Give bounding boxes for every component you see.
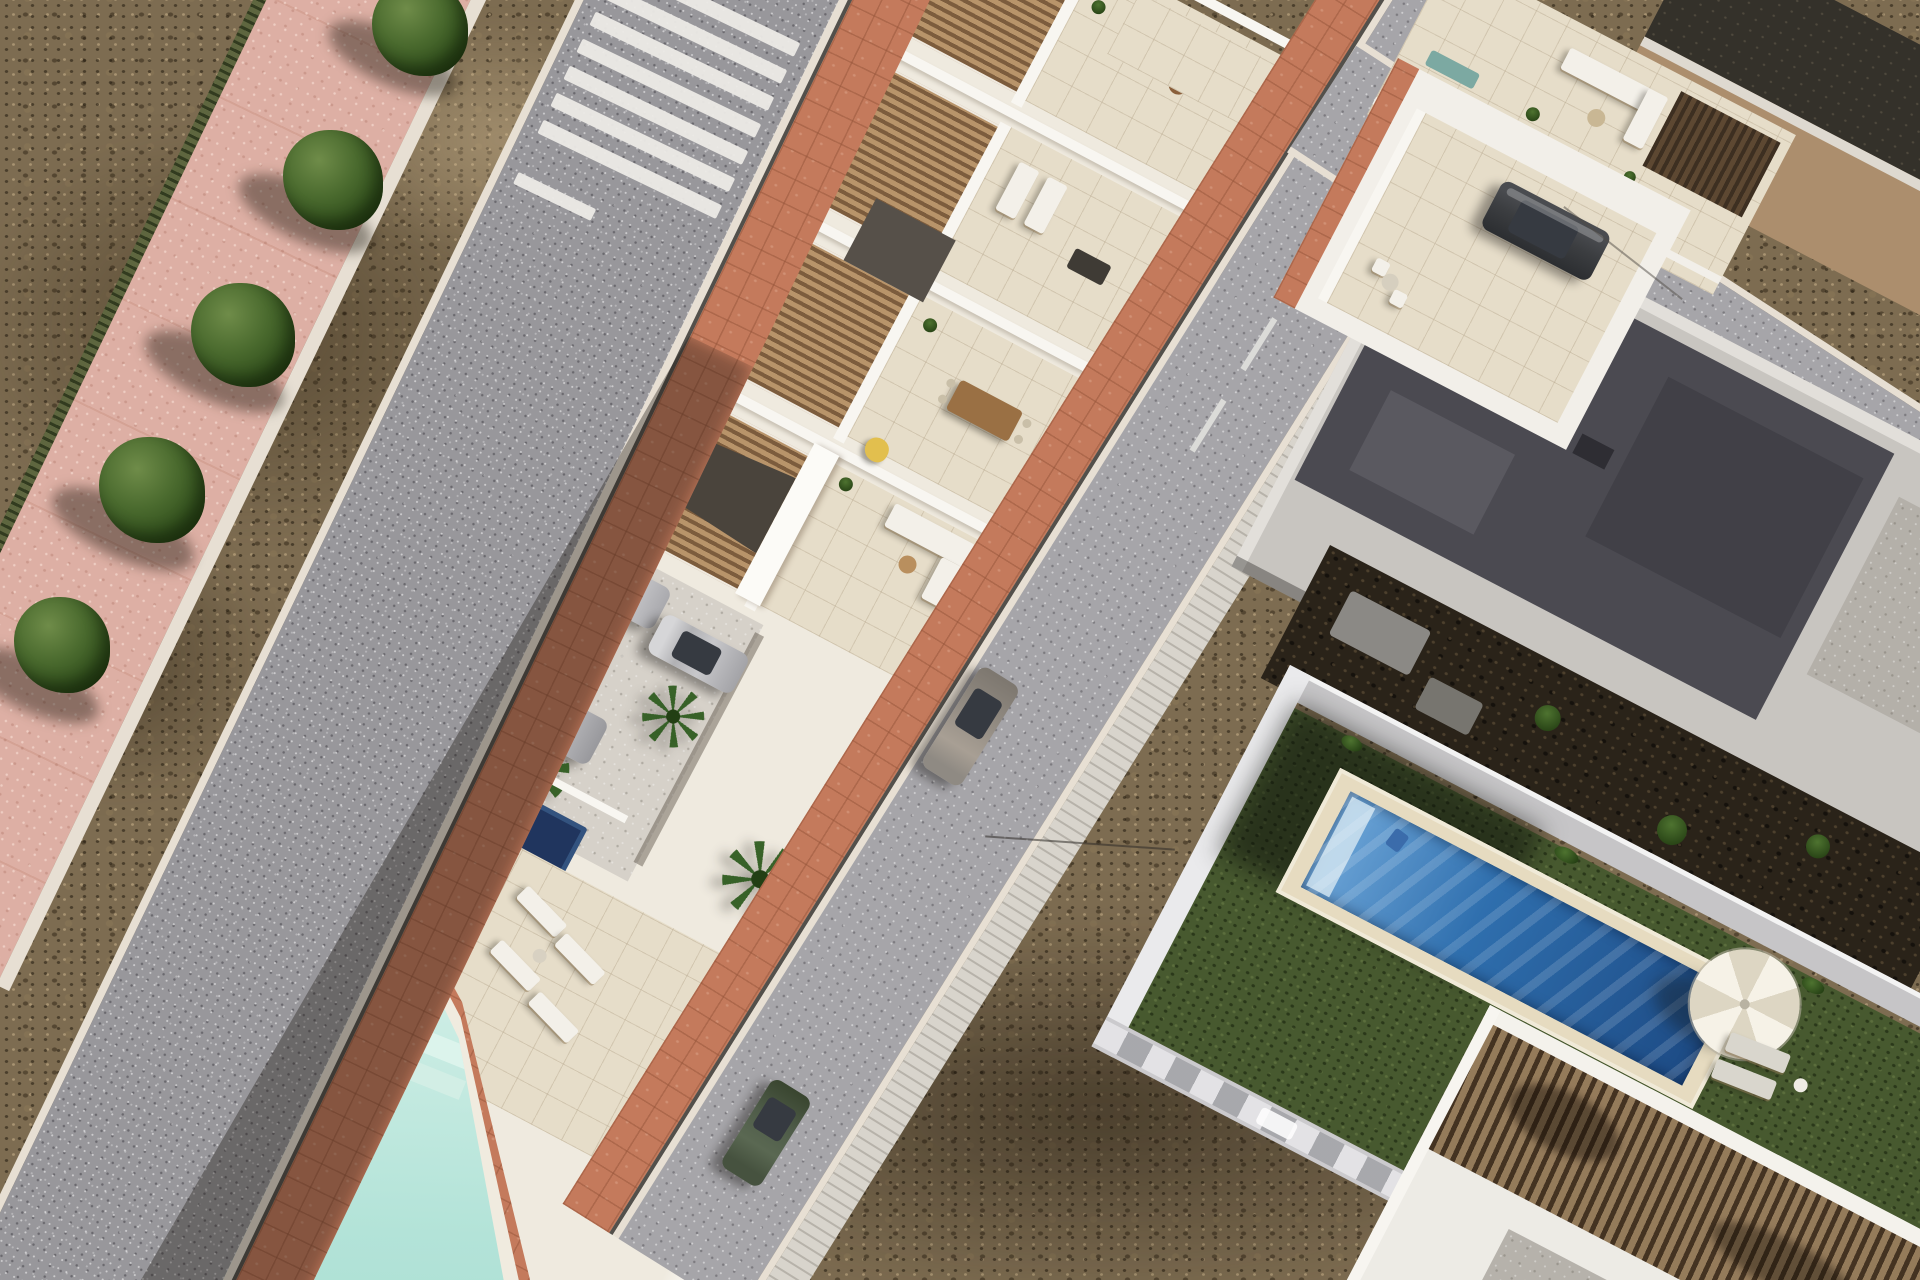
aerial-scene: Aerial 3D render of a new whitewashed to…: [0, 0, 1920, 1280]
round-table: [1584, 106, 1608, 130]
terrace-sofa: [1560, 47, 1653, 111]
palm-core: [663, 706, 683, 726]
shrub: [1530, 701, 1565, 736]
parasol-pole-cap: [1738, 998, 1751, 1011]
shrub: [1652, 810, 1692, 850]
concrete-pad: [1329, 590, 1432, 676]
terrace-plant: [1523, 105, 1542, 124]
car-glass: [751, 1096, 797, 1143]
concrete-pad: [1414, 676, 1484, 736]
shrub: [1802, 830, 1834, 862]
